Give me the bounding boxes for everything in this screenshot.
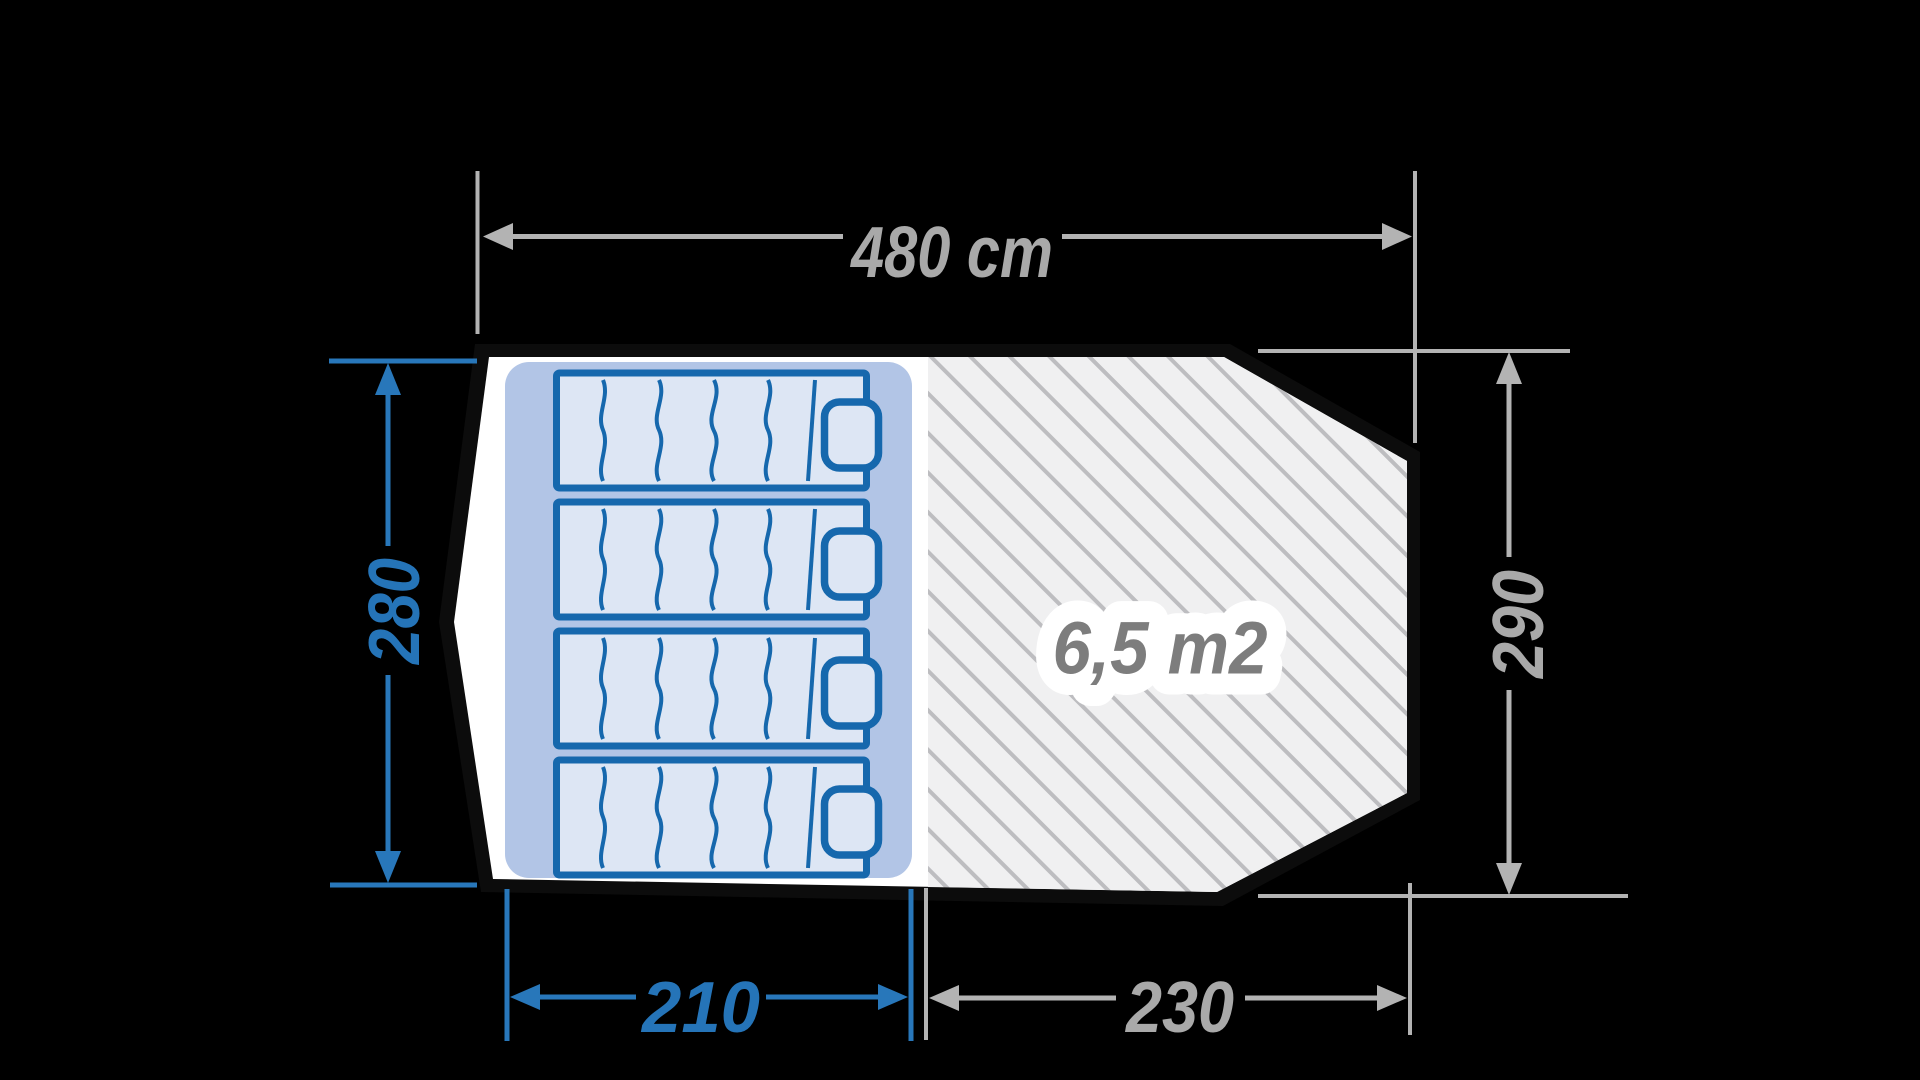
living-area: 6,5 m2 [928, 357, 1407, 892]
arrow-down-icon [375, 851, 401, 883]
arrow-right-icon [1377, 985, 1407, 1011]
arrow-left-icon [510, 984, 540, 1010]
floorplan-canvas: 6,5 m2 480 cm 280 290 21 [0, 0, 1920, 1080]
dimension-sleeping-width: 210 [507, 889, 911, 1048]
dimension-label: 480 cm [849, 213, 1053, 293]
dimension-label: 230 [1124, 968, 1234, 1048]
dimension-label: 290 [1479, 570, 1559, 680]
dimension-living-width: 230 [926, 883, 1410, 1048]
sleeping-area [505, 362, 912, 878]
dimension-label: 280 [355, 558, 435, 666]
mattress [557, 631, 879, 746]
living-area-label: 6,5 m2 [1053, 607, 1268, 690]
mattress [557, 760, 879, 875]
dimension-label: 210 [640, 968, 760, 1048]
arrow-right-icon [878, 984, 908, 1010]
arrow-left-icon [929, 985, 959, 1011]
mattress [557, 502, 879, 617]
tent-floorplan-diagram: 6,5 m2 480 cm 280 290 21 [0, 0, 1920, 1080]
mattress [557, 373, 879, 488]
arrow-up-icon [375, 363, 401, 395]
arrow-right-icon [1382, 223, 1412, 250]
arrow-down-icon [1496, 863, 1522, 895]
arrow-left-icon [483, 223, 513, 250]
arrow-up-icon [1496, 352, 1522, 384]
